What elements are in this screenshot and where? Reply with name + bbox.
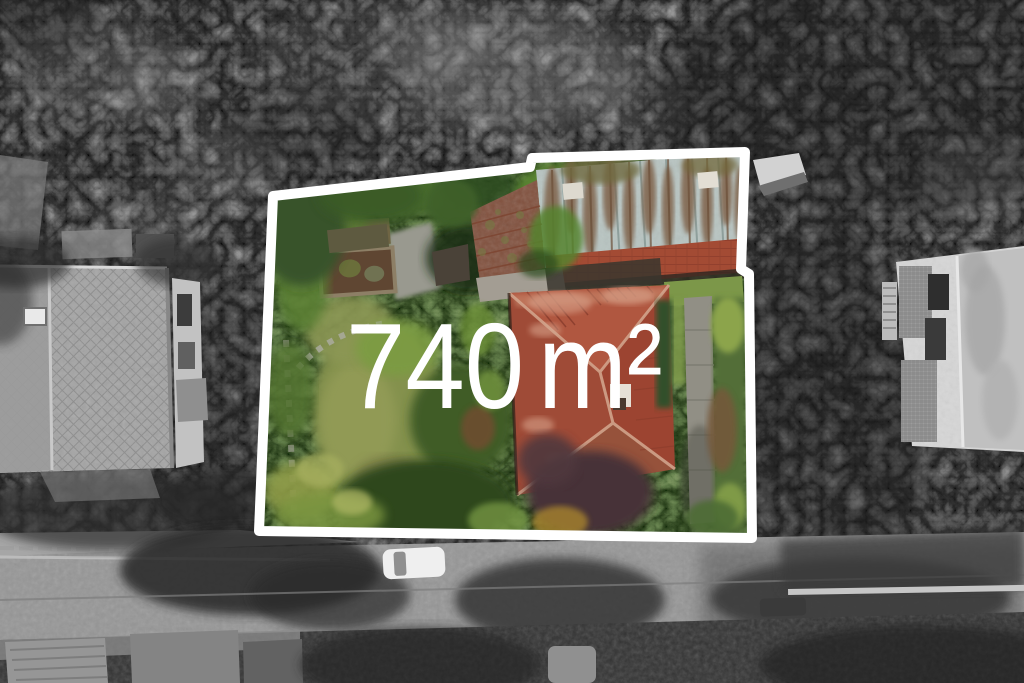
svg-text:740 m²: 740 m²	[346, 298, 662, 434]
